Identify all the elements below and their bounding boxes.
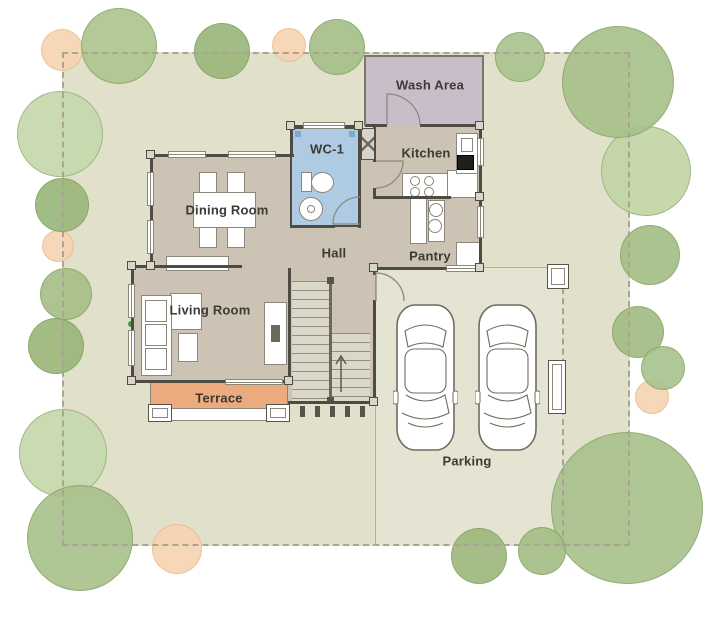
living-room-label: Living Room <box>170 303 251 318</box>
parking-label: Parking <box>442 454 491 469</box>
kitchen-label: Kitchen <box>401 146 450 161</box>
wc-label: WC-1 <box>310 142 344 157</box>
pantry-label: Pantry <box>409 249 451 264</box>
terrace-label: Terrace <box>195 391 242 406</box>
floor-plan: Wash Area WC-1 Kitchen Dining Room Hall … <box>0 0 727 640</box>
door-swing-lines <box>0 0 727 640</box>
dining-room-label: Dining Room <box>185 203 268 218</box>
wash-area-label: Wash Area <box>396 78 464 93</box>
stair-up-arrow <box>336 356 346 392</box>
hall-label: Hall <box>322 246 347 261</box>
